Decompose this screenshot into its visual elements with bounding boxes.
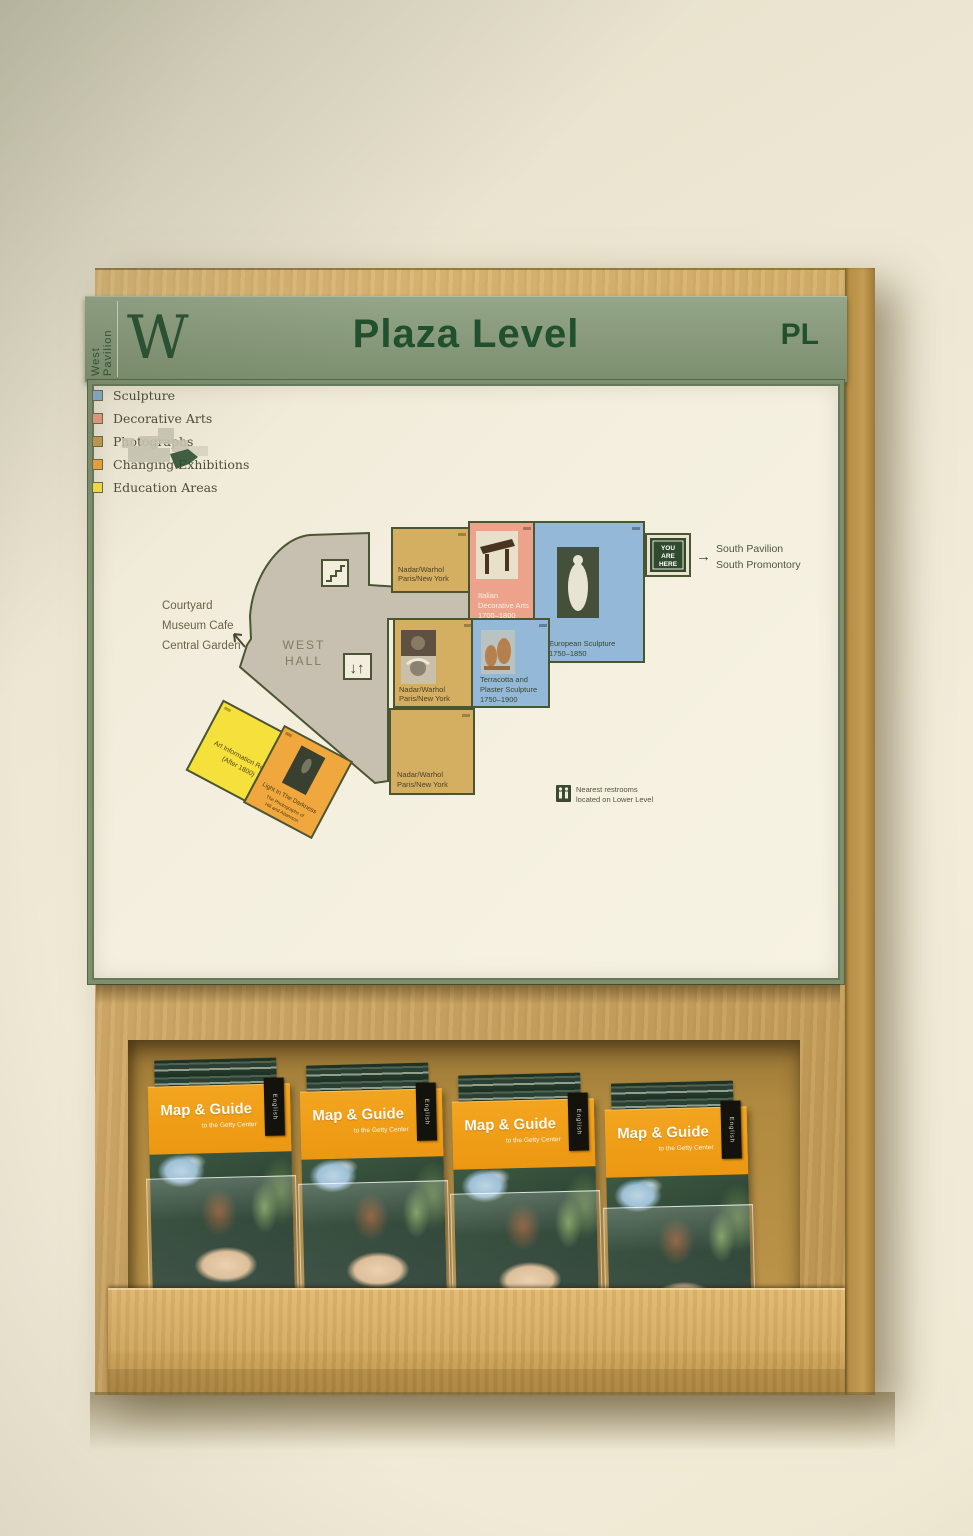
west-exit-line3: Central Garden: [162, 640, 241, 652]
svg-text:Nadar/Warhol: Nadar/Warhol: [399, 685, 445, 694]
brochure-stack-edges: [154, 1058, 277, 1087]
level-abbreviation: PL: [781, 318, 819, 352]
svg-text:1750–1900: 1750–1900: [480, 695, 518, 704]
room-number-tag: [458, 533, 466, 536]
acrylic-pocket: [298, 1180, 451, 1304]
room-photographs-north: Nadar/Warhol Paris/New York: [392, 528, 470, 592]
acrylic-pocket: [146, 1175, 299, 1299]
svg-text:Nadar/Warhol: Nadar/Warhol: [397, 770, 443, 779]
brochure-stack-edges: [306, 1063, 429, 1092]
brochure-stack-edges: [611, 1081, 734, 1110]
room-decorative-arts: Italian Decorative Arts 1700–1800: [469, 522, 535, 625]
level-title: Plaza Level: [85, 312, 847, 357]
elevator-icon: ↓↑: [344, 654, 371, 679]
brochure-stack: Map & Guide to the Getty Center English: [451, 1072, 599, 1309]
brochure-stack: Map & Guide to the Getty Center English: [147, 1057, 295, 1294]
svg-text:ARE: ARE: [661, 553, 675, 560]
floorplan-panel: WEST HALL ↓↑ Courtyard Museum Cafe Centr…: [88, 380, 844, 984]
room-terracotta-sculpture: Terracotta and Plaster Sculpture 1750–19…: [472, 619, 549, 707]
panel-drop-shadow: [96, 984, 840, 1004]
west-hall-label-line2: HALL: [285, 654, 323, 668]
room-number-tag: [523, 527, 531, 530]
brochure-stack-edges: [458, 1073, 581, 1102]
restrooms-icon: [556, 785, 571, 802]
west-exit-line2: Museum Cafe: [162, 620, 234, 632]
sign-header-band: West Pavilion W Plaza Level PL: [85, 296, 847, 382]
svg-text:Plaster Sculpture: Plaster Sculpture: [480, 685, 537, 694]
south-exit-line2: South Promontory: [716, 559, 801, 571]
restrooms-line2: located on Lower Level: [576, 795, 653, 804]
photography-artwork: [401, 630, 436, 684]
stairs-icon: [322, 560, 348, 586]
south-exit-arrow-icon: →: [696, 548, 711, 565]
photo-of-wayfinding-sign: West Pavilion W Plaza Level PL WEST HALL: [0, 0, 973, 1536]
svg-text:Paris/New York: Paris/New York: [399, 694, 450, 703]
svg-text:Decorative Arts: Decorative Arts: [478, 601, 529, 610]
brochure-language-tab: English: [416, 1082, 437, 1140]
floorplan-map: WEST HALL ↓↑ Courtyard Museum Cafe Centr…: [92, 384, 840, 980]
west-hall-label-line1: WEST: [283, 638, 326, 652]
svg-text:1750–1850: 1750–1850: [549, 649, 587, 658]
brochure-header: Map & Guide to the Getty Center English: [605, 1106, 749, 1177]
brochure-language-tab: English: [568, 1092, 589, 1150]
south-exit-line1: South Pavilion: [716, 543, 783, 555]
brochure-header: Map & Guide to the Getty Center English: [300, 1088, 444, 1159]
you-are-here-badge: YOU ARE HERE: [646, 534, 690, 576]
brochure-front: Map & Guide to the Getty Center English: [148, 1083, 295, 1294]
brochure-header: Map & Guide to the Getty Center English: [148, 1083, 292, 1154]
sculpture-artwork: [557, 547, 599, 618]
west-exit-line1: Courtyard: [162, 600, 213, 612]
site-overview-thumbnail: [122, 428, 208, 469]
terracotta-artwork: [481, 630, 515, 674]
brochure-front: Map & Guide to the Getty Center English: [300, 1088, 447, 1299]
room-european-sculpture: European Sculpture 1750–1850: [534, 522, 644, 662]
svg-text:Terracotta and: Terracotta and: [480, 675, 528, 684]
room-number-tag: [632, 527, 640, 530]
brochure-language-tab: English: [720, 1100, 741, 1158]
restrooms-line1: Nearest restrooms: [576, 785, 638, 794]
svg-text:Nadar/Warhol: Nadar/Warhol: [398, 565, 444, 574]
svg-text:European Sculpture: European Sculpture: [549, 639, 615, 648]
brochure-language-tab: English: [264, 1077, 285, 1135]
brochure-header: Map & Guide to the Getty Center English: [452, 1098, 596, 1169]
svg-text:Paris/New York: Paris/New York: [397, 780, 448, 789]
svg-text:Paris/New York: Paris/New York: [398, 574, 449, 583]
room-number-tag: [539, 624, 547, 627]
room-photographs-center: Nadar/Warhol Paris/New York: [394, 619, 476, 707]
cabinet-under-shadow: [90, 1392, 895, 1450]
svg-text:↓↑: ↓↑: [350, 660, 365, 677]
brochure-stack: Map & Guide to the Getty Center English: [299, 1062, 447, 1299]
svg-text:YOU: YOU: [661, 545, 675, 552]
shelf-front-rail: [108, 1288, 845, 1395]
room-number-tag: [464, 624, 472, 627]
room-photographs-south: Nadar/Warhol Paris/New York: [390, 709, 474, 794]
brochure-front: Map & Guide to the Getty Center English: [452, 1098, 599, 1309]
cabinet-side-face: [845, 268, 875, 1395]
decorative-arts-artwork: [476, 531, 518, 579]
room-number-tag: [462, 714, 470, 717]
svg-text:HERE: HERE: [659, 561, 678, 568]
svg-text:Italian: Italian: [478, 591, 498, 600]
